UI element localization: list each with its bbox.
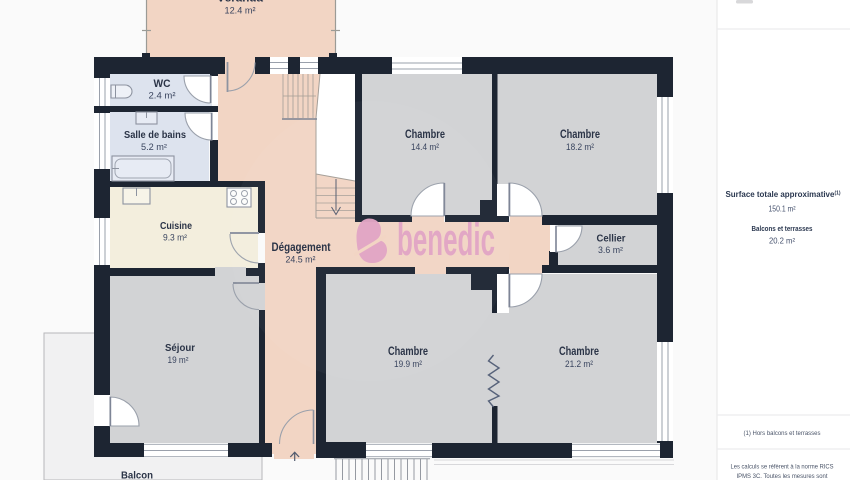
svg-text:(1) Hors balcons et terrasses: (1) Hors balcons et terrasses	[744, 430, 822, 437]
svg-text:Chambre: Chambre	[405, 129, 445, 141]
svg-text:benedic: benedic	[397, 214, 495, 265]
svg-text:3.6 m²: 3.6 m²	[598, 245, 623, 255]
svg-text:Chambre: Chambre	[560, 129, 600, 141]
svg-text:Balcon: Balcon	[121, 470, 153, 480]
svg-text:20.2 m²: 20.2 m²	[769, 237, 795, 246]
svg-text:19.9 m²: 19.9 m²	[394, 359, 422, 370]
svg-text:Cuisine: Cuisine	[160, 221, 192, 232]
svg-text:Séjour: Séjour	[165, 342, 195, 354]
svg-text:Cellier: Cellier	[597, 233, 626, 245]
svg-text:Chambre: Chambre	[388, 346, 428, 358]
svg-text:5.2 m²: 5.2 m²	[141, 142, 167, 152]
svg-text:12.4 m²: 12.4 m²	[225, 6, 256, 17]
svg-text:Surface totale approximative(1: Surface totale approximative(1)	[725, 189, 840, 199]
svg-text:9.3 m²: 9.3 m²	[163, 233, 187, 243]
svg-text:Véranda: Véranda	[217, 0, 264, 5]
svg-text:Les calculs se réfèrent à la n: Les calculs se réfèrent à la norme RICS	[731, 464, 835, 471]
svg-text:IPMS 3C. Toutes les mesures so: IPMS 3C. Toutes les mesures sont	[737, 473, 828, 480]
svg-text:2.4 m²: 2.4 m²	[149, 91, 176, 102]
svg-text:18.2 m²: 18.2 m²	[566, 142, 594, 153]
svg-text:Chambre: Chambre	[559, 346, 599, 358]
svg-text:Balcons et terrasses: Balcons et terrasses	[752, 224, 813, 233]
svg-text:WC: WC	[154, 78, 171, 90]
svg-text:Dégagement: Dégagement	[272, 242, 331, 254]
svg-text:Salle de bains: Salle de bains	[124, 130, 186, 141]
svg-text:150.1 m²: 150.1 m²	[769, 205, 796, 214]
svg-text:21.2 m²: 21.2 m²	[565, 359, 593, 370]
svg-text:24.5 m²: 24.5 m²	[286, 255, 316, 266]
svg-text:19 m²: 19 m²	[168, 355, 189, 365]
svg-text:14.4 m²: 14.4 m²	[411, 142, 439, 153]
